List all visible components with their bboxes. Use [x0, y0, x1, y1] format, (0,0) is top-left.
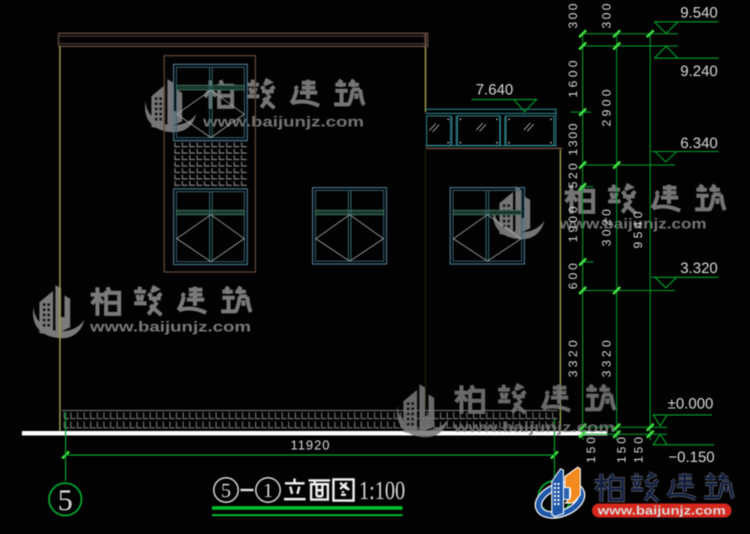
svg-text:3.320: 3.320	[680, 260, 718, 277]
svg-text:6.340: 6.340	[680, 135, 718, 152]
svg-text:−0.150: −0.150	[668, 449, 714, 466]
svg-text:150: 150	[615, 437, 629, 463]
svg-text:1300: 1300	[566, 123, 580, 155]
svg-text:600: 600	[566, 263, 580, 289]
svg-text:300: 300	[600, 3, 614, 28]
svg-text:300: 300	[566, 3, 580, 28]
svg-text:www.baijunjz.com: www.baijunjz.com	[89, 320, 251, 336]
svg-text:520: 520	[566, 163, 580, 188]
svg-text:9.240: 9.240	[680, 63, 718, 80]
svg-text:9.540: 9.540	[680, 5, 718, 22]
svg-text:150: 150	[632, 437, 646, 463]
svg-text:7.640: 7.640	[476, 82, 514, 99]
svg-text:5: 5	[58, 484, 73, 517]
svg-text:5: 5	[221, 480, 231, 502]
svg-text:www.baijunjz.com: www.baijunjz.com	[596, 503, 725, 517]
svg-text:1: 1	[263, 480, 273, 502]
svg-text:www.baijunjz.com: www.baijunjz.com	[202, 115, 364, 131]
svg-text:www.baijunjz.com: www.baijunjz.com	[453, 420, 615, 436]
svg-text:11920: 11920	[291, 438, 330, 453]
svg-text:150: 150	[584, 437, 598, 463]
svg-text:1:100: 1:100	[359, 476, 405, 505]
svg-text:±0.000: ±0.000	[668, 396, 714, 413]
